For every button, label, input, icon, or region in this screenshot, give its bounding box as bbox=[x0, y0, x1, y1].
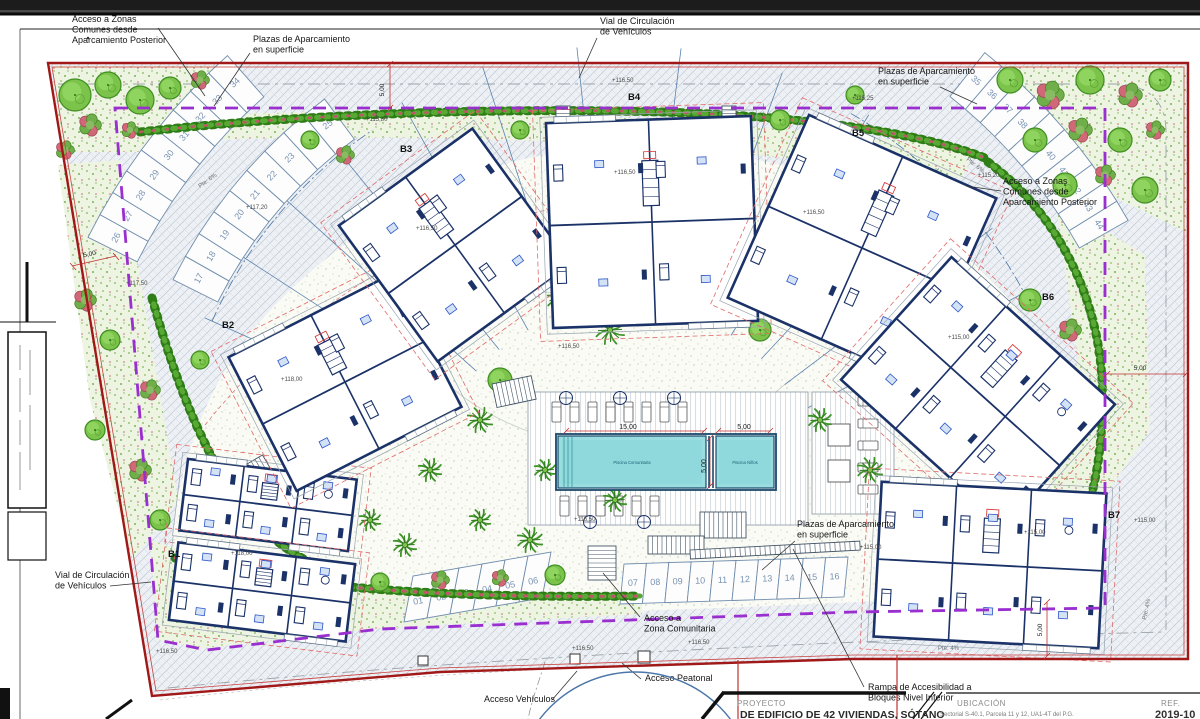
project-label: PROYECTO bbox=[737, 699, 786, 708]
site-plan-screenshot: 2627282930313233341718192021222324253536… bbox=[0, 0, 1200, 719]
elev-road-right-mid: +115,00 bbox=[860, 545, 882, 551]
tree bbox=[1023, 128, 1047, 152]
sun-lounger bbox=[678, 402, 687, 422]
building-block bbox=[860, 468, 1120, 662]
tree bbox=[100, 330, 120, 350]
site-plan-drawing: 2627282930313233341718192021222324253536… bbox=[0, 0, 1200, 719]
block-label-b1: B1 bbox=[168, 549, 181, 560]
elev-road-top-left: +115,80 bbox=[366, 117, 388, 123]
tree bbox=[1076, 66, 1104, 94]
block-label-b3: B3 bbox=[400, 144, 412, 155]
elev-b1-low: +116,50 bbox=[156, 649, 178, 655]
sun-lounger bbox=[858, 441, 878, 450]
tree bbox=[371, 573, 389, 591]
sun-lounger bbox=[606, 402, 615, 422]
elev-b1: +118,00 bbox=[231, 551, 253, 557]
location-value: Sectorial S-40.1, Parcela 11 y 12, UA1-4… bbox=[940, 712, 1074, 718]
tree bbox=[1108, 128, 1132, 152]
elev-road-bottom: +116,50 bbox=[688, 640, 710, 646]
sun-lounger bbox=[642, 402, 651, 422]
tree bbox=[301, 131, 319, 149]
elev-b7: +115,00 bbox=[1024, 530, 1046, 536]
elev-deck: +116,50 bbox=[574, 517, 596, 523]
pool-width-dim: 5,00 bbox=[701, 459, 708, 473]
sun-lounger bbox=[660, 402, 669, 422]
stairs bbox=[700, 512, 746, 538]
tree bbox=[1132, 177, 1158, 203]
elev-b5: +116,50 bbox=[803, 210, 825, 216]
parking-number: 10 bbox=[695, 575, 705, 585]
stairs bbox=[588, 546, 616, 580]
tree bbox=[511, 121, 529, 139]
sun-lounger bbox=[858, 419, 878, 428]
tree bbox=[159, 77, 181, 99]
sun-lounger bbox=[624, 402, 633, 422]
sun-lounger bbox=[570, 402, 579, 422]
tree bbox=[59, 79, 91, 111]
sun-lounger bbox=[588, 402, 597, 422]
main-pool-label: Piscina Comunitaria bbox=[613, 460, 651, 465]
tree bbox=[191, 351, 209, 369]
tree bbox=[997, 67, 1023, 93]
sun-lounger bbox=[552, 402, 561, 422]
sun-lounger bbox=[632, 496, 641, 516]
block-label-b7: B7 bbox=[1108, 510, 1120, 521]
location-label: UBICACIÓN bbox=[957, 699, 1006, 708]
slope-bottom: Pte: 4% bbox=[938, 646, 960, 652]
tree bbox=[770, 110, 790, 130]
elev-road-bottom-2: +116,50 bbox=[572, 646, 594, 652]
dim-right: 5,00 bbox=[1134, 365, 1147, 372]
parking-number: 01 bbox=[412, 595, 424, 607]
ref-value: 2019-10 bbox=[1155, 709, 1195, 719]
parking-number: 15 bbox=[807, 572, 817, 582]
kids-pool-dim: 5,00 bbox=[737, 424, 751, 431]
elev-b4: +116,50 bbox=[614, 170, 636, 176]
tree bbox=[95, 72, 121, 98]
parking-number: 13 bbox=[762, 573, 772, 583]
elev-b7-road: +115,00 bbox=[1134, 518, 1156, 524]
sun-lounger bbox=[650, 496, 659, 516]
elev-road-top-right: +115,25 bbox=[852, 96, 874, 102]
tree bbox=[1149, 69, 1171, 91]
label-vehicle-access: Acceso Vehículos bbox=[484, 694, 556, 704]
elev-b3: +116,50 bbox=[416, 226, 438, 232]
block-label-b5: B5 bbox=[852, 128, 865, 139]
tree bbox=[545, 565, 565, 585]
parking-number: 09 bbox=[673, 576, 683, 586]
pool-length-dim: 15,00 bbox=[619, 424, 637, 431]
parking-number: 14 bbox=[785, 573, 795, 583]
dim-bottom: 5,00 bbox=[1037, 623, 1044, 636]
building-block bbox=[533, 103, 772, 342]
parking-number: 11 bbox=[718, 575, 728, 585]
elev-road-top: +116,50 bbox=[612, 78, 634, 84]
sun-lounger bbox=[596, 496, 605, 516]
parking-number: 16 bbox=[829, 571, 839, 581]
kids-pool-label: Piscina Niños bbox=[732, 460, 757, 465]
project-value: DE EDIFICIO DE 42 VIVIENDAS, SÓTANO bbox=[740, 708, 945, 719]
block-label-b4: B4 bbox=[628, 92, 641, 103]
elev-upper-left-2: +117,50 bbox=[126, 281, 148, 287]
elev-upper-left-1: +117,20 bbox=[246, 205, 268, 211]
sun-lounger bbox=[560, 496, 569, 516]
parking-number: 12 bbox=[740, 574, 750, 584]
tree bbox=[1019, 289, 1041, 311]
elev-b6: +115,00 bbox=[948, 335, 970, 341]
parking-number: 08 bbox=[650, 577, 660, 587]
label-pedestrian-access: Acceso Peatonal bbox=[645, 673, 713, 683]
elev-b2: +118,00 bbox=[281, 377, 303, 383]
tree bbox=[126, 86, 154, 114]
window-top-bar bbox=[0, 0, 1200, 10]
block-label-b6: B6 bbox=[1042, 292, 1054, 303]
left-title-box bbox=[8, 332, 46, 508]
tree bbox=[150, 510, 170, 530]
sun-lounger bbox=[578, 496, 587, 516]
elev-courtyard: +116,50 bbox=[558, 344, 580, 350]
pool: Piscina Comunitaria Piscina Niños 15,00 … bbox=[556, 424, 776, 490]
block-label-b2: B2 bbox=[222, 320, 234, 331]
ref-label: REF. bbox=[1161, 699, 1180, 708]
parking-number: 06 bbox=[527, 575, 539, 587]
dim-top: 5,00 bbox=[379, 83, 386, 96]
tree bbox=[85, 420, 105, 440]
parking-number: 07 bbox=[628, 577, 638, 587]
